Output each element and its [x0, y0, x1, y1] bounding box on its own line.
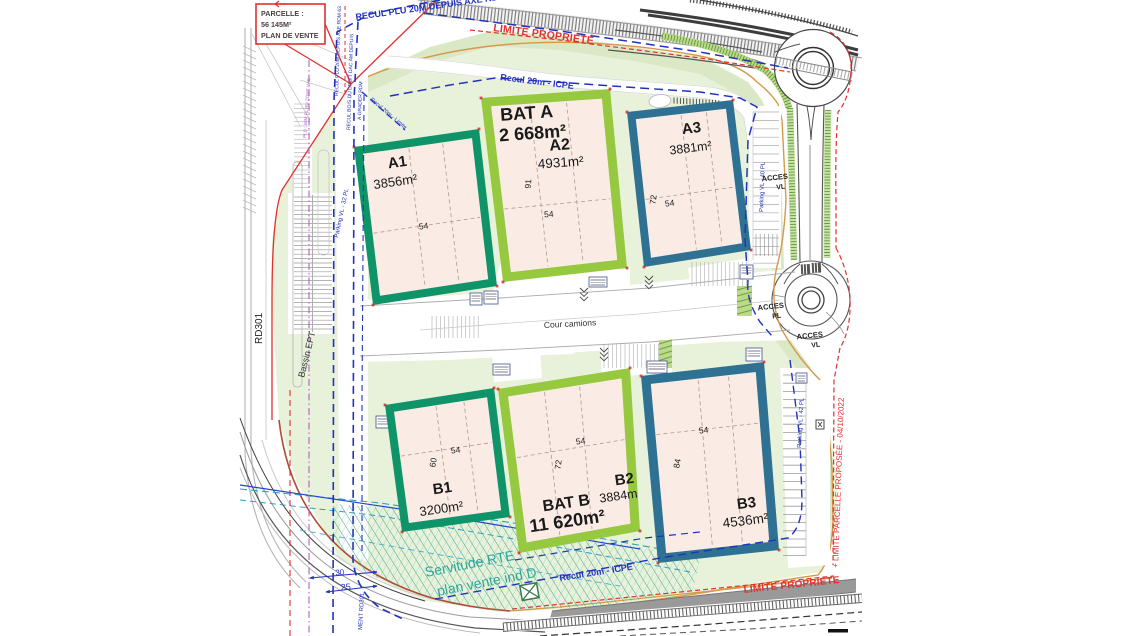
svg-text:25: 25	[340, 582, 351, 593]
svg-text:A3: A3	[681, 119, 702, 138]
svg-text:54: 54	[450, 444, 461, 455]
svg-text:A2: A2	[549, 136, 571, 154]
svg-text:56 145M²: 56 145M²	[261, 20, 292, 29]
svg-text:54: 54	[698, 424, 709, 435]
svg-text:84: 84	[671, 458, 683, 469]
svg-text:72: 72	[647, 194, 658, 205]
svg-text:54: 54	[575, 435, 586, 446]
svg-text:B3: B3	[736, 494, 757, 513]
svg-text:30: 30	[335, 568, 345, 578]
svg-text:54: 54	[544, 209, 554, 220]
svg-text:54: 54	[664, 197, 675, 208]
svg-text:PL: PL	[772, 312, 782, 320]
svg-text:VL: VL	[811, 341, 821, 349]
svg-text:PARCELLE :: PARCELLE :	[261, 9, 304, 18]
svg-text:B1: B1	[432, 479, 453, 499]
svg-text:VL: VL	[776, 183, 786, 191]
svg-text:54: 54	[418, 220, 429, 231]
svg-text:RD301: RD301	[254, 312, 265, 344]
svg-text:A1: A1	[387, 153, 408, 173]
svg-text:60: 60	[427, 457, 439, 468]
svg-text:PLAN DE VENTE: PLAN DE VENTE	[261, 31, 319, 40]
svg-text:91: 91	[523, 178, 534, 188]
svg-text:72: 72	[552, 459, 563, 470]
